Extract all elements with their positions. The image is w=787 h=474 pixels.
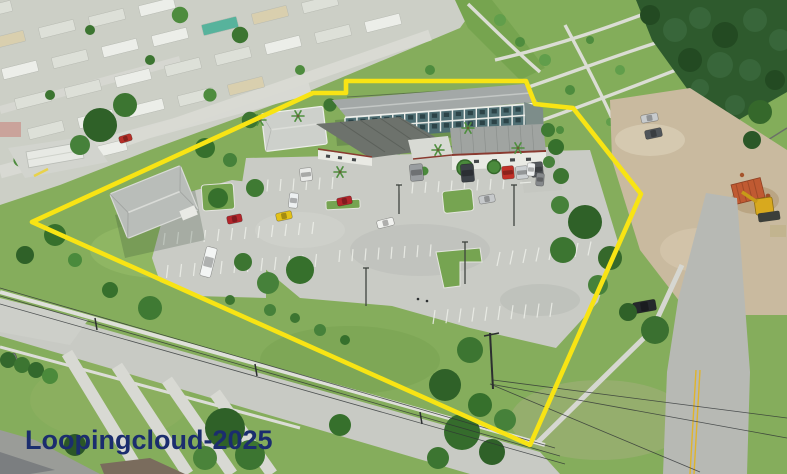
debris [740, 173, 744, 177]
weedy-grass-patch [510, 380, 690, 460]
dark-suv-front-row [460, 163, 475, 182]
gray-car-east-drive [536, 173, 545, 187]
red-car-front-row [501, 166, 514, 180]
aerial-photo-canvas: Loopingcloud-2025 [0, 0, 787, 474]
white-car-front-row [299, 167, 312, 181]
entrance-porch [408, 136, 453, 160]
white-suv-west-lot [288, 193, 299, 209]
dirt-parking-patch [615, 124, 685, 156]
pedestrian [417, 298, 420, 301]
gray-van-front-row [409, 163, 423, 181]
machinery [770, 225, 786, 237]
pavement-patch [255, 212, 345, 248]
pink-building [0, 122, 21, 137]
aerial-photo: Loopingcloud-2025 [0, 0, 787, 474]
pedestrian [426, 300, 429, 303]
topiary-bush [488, 161, 501, 174]
white-car-east-drive [527, 163, 536, 177]
watermark-text: Loopingcloud-2025 [25, 425, 273, 455]
